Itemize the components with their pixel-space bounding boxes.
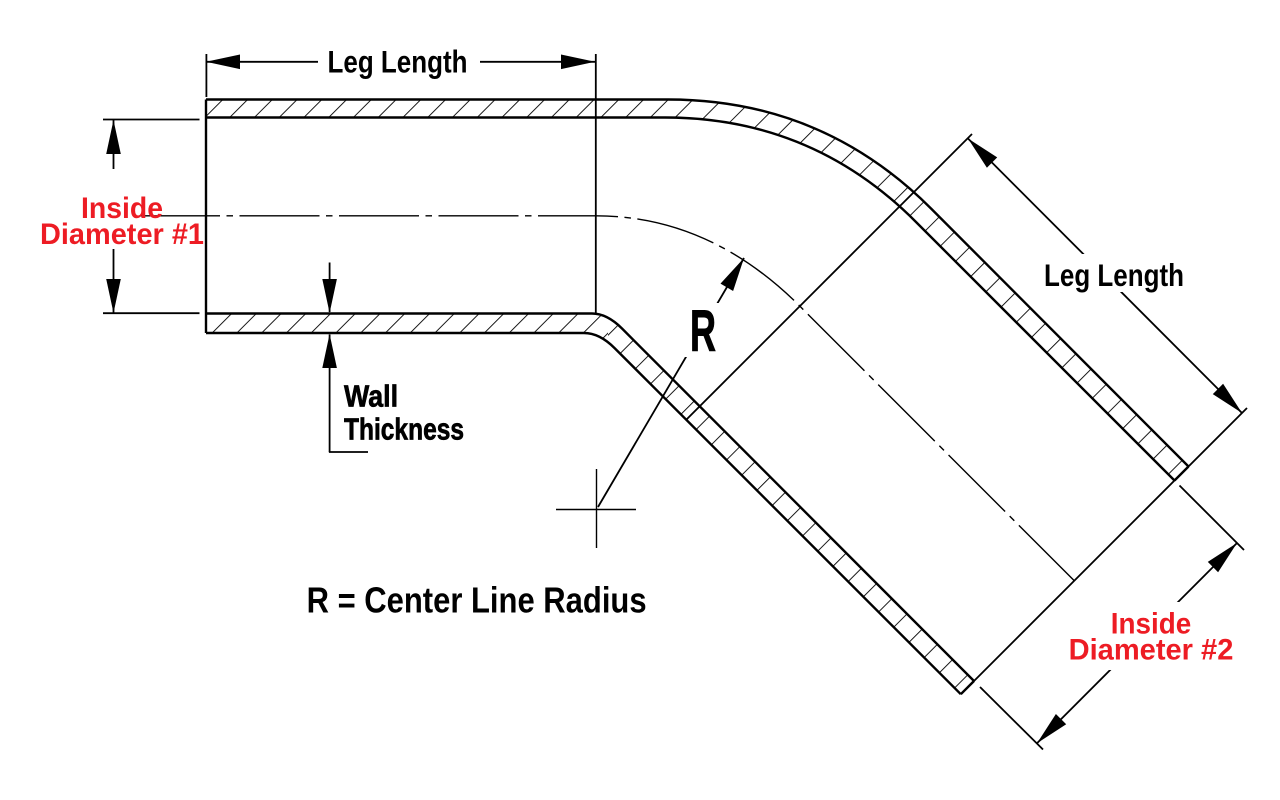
svg-text:R = Center Line Radius: R = Center Line Radius xyxy=(307,580,647,621)
svg-text:Leg Length: Leg Length xyxy=(1044,257,1184,293)
svg-text:Diameter #2: Diameter #2 xyxy=(1069,633,1234,666)
svg-text:Diameter #1: Diameter #1 xyxy=(40,218,204,251)
svg-text:Leg Length: Leg Length xyxy=(328,43,468,79)
svg-text:R: R xyxy=(690,299,716,364)
svg-text:Wall: Wall xyxy=(344,379,398,414)
svg-text:Thickness: Thickness xyxy=(344,412,464,447)
